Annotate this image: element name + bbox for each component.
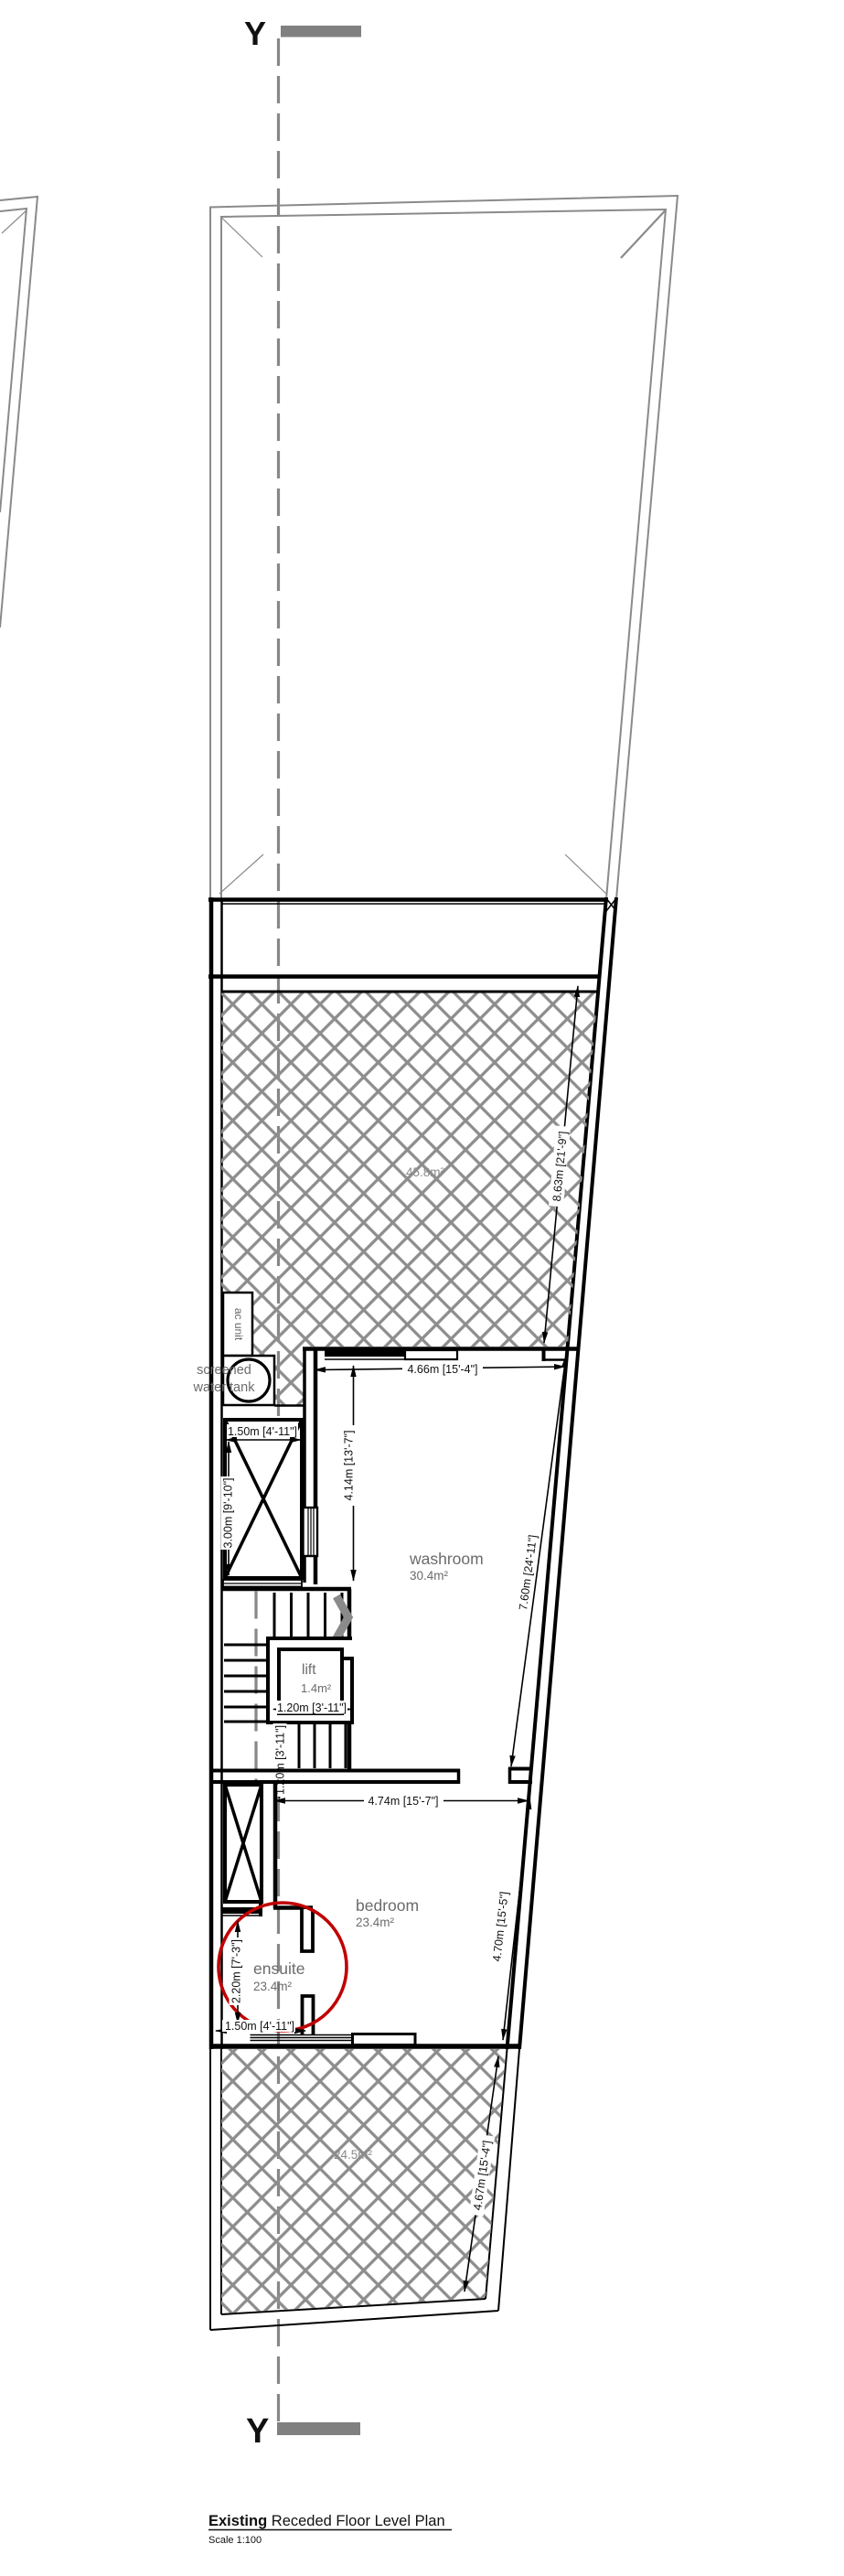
svg-text:24.5m²: 24.5m² <box>334 2148 373 2162</box>
svg-text:Y: Y <box>246 2412 269 2451</box>
svg-text:23.4m²: 23.4m² <box>356 1916 395 1929</box>
svg-text:4.66m [15'-4"]: 4.66m [15'-4"] <box>407 1363 477 1376</box>
svg-text:1.50m [4'-11"]: 1.50m [4'-11"] <box>225 2020 294 2033</box>
svg-text:screened: screened <box>197 1363 251 1378</box>
svg-text:3.00m [9'-10"]: 3.00m [9'-10"] <box>222 1477 235 1548</box>
svg-text:ac unit: ac unit <box>232 1308 245 1341</box>
svg-text:Scale 1:100: Scale 1:100 <box>208 2535 262 2546</box>
svg-text:45.8m²: 45.8m² <box>406 1165 445 1179</box>
svg-text:30.4m²: 30.4m² <box>410 1569 449 1583</box>
svg-text:lift: lift <box>302 1662 316 1678</box>
svg-text:2.20m [7'-3"]: 2.20m [7'-3"] <box>230 1939 243 2003</box>
svg-text:water tank: water tank <box>193 1380 256 1395</box>
svg-text:23.4m²: 23.4m² <box>253 1980 293 1993</box>
svg-text:4.14m [13'-7"]: 4.14m [13'-7"] <box>343 1430 356 1500</box>
svg-text:Y: Y <box>244 15 266 52</box>
svg-text:1.20m [3'-11"]: 1.20m [3'-11"] <box>277 1701 347 1714</box>
svg-text:Existing Receded Floor Level P: Existing Receded Floor Level Plan <box>208 2513 445 2529</box>
svg-text:washroom: washroom <box>409 1550 484 1568</box>
svg-text:1.50m [4'-11"]: 1.50m [4'-11"] <box>228 1425 297 1438</box>
svg-text:ensuite: ensuite <box>253 1959 304 1978</box>
svg-text:1.4m²: 1.4m² <box>301 1681 332 1695</box>
svg-text:bedroom: bedroom <box>356 1896 419 1915</box>
svg-text:4.74m [15'-7"]: 4.74m [15'-7"] <box>368 1795 438 1808</box>
